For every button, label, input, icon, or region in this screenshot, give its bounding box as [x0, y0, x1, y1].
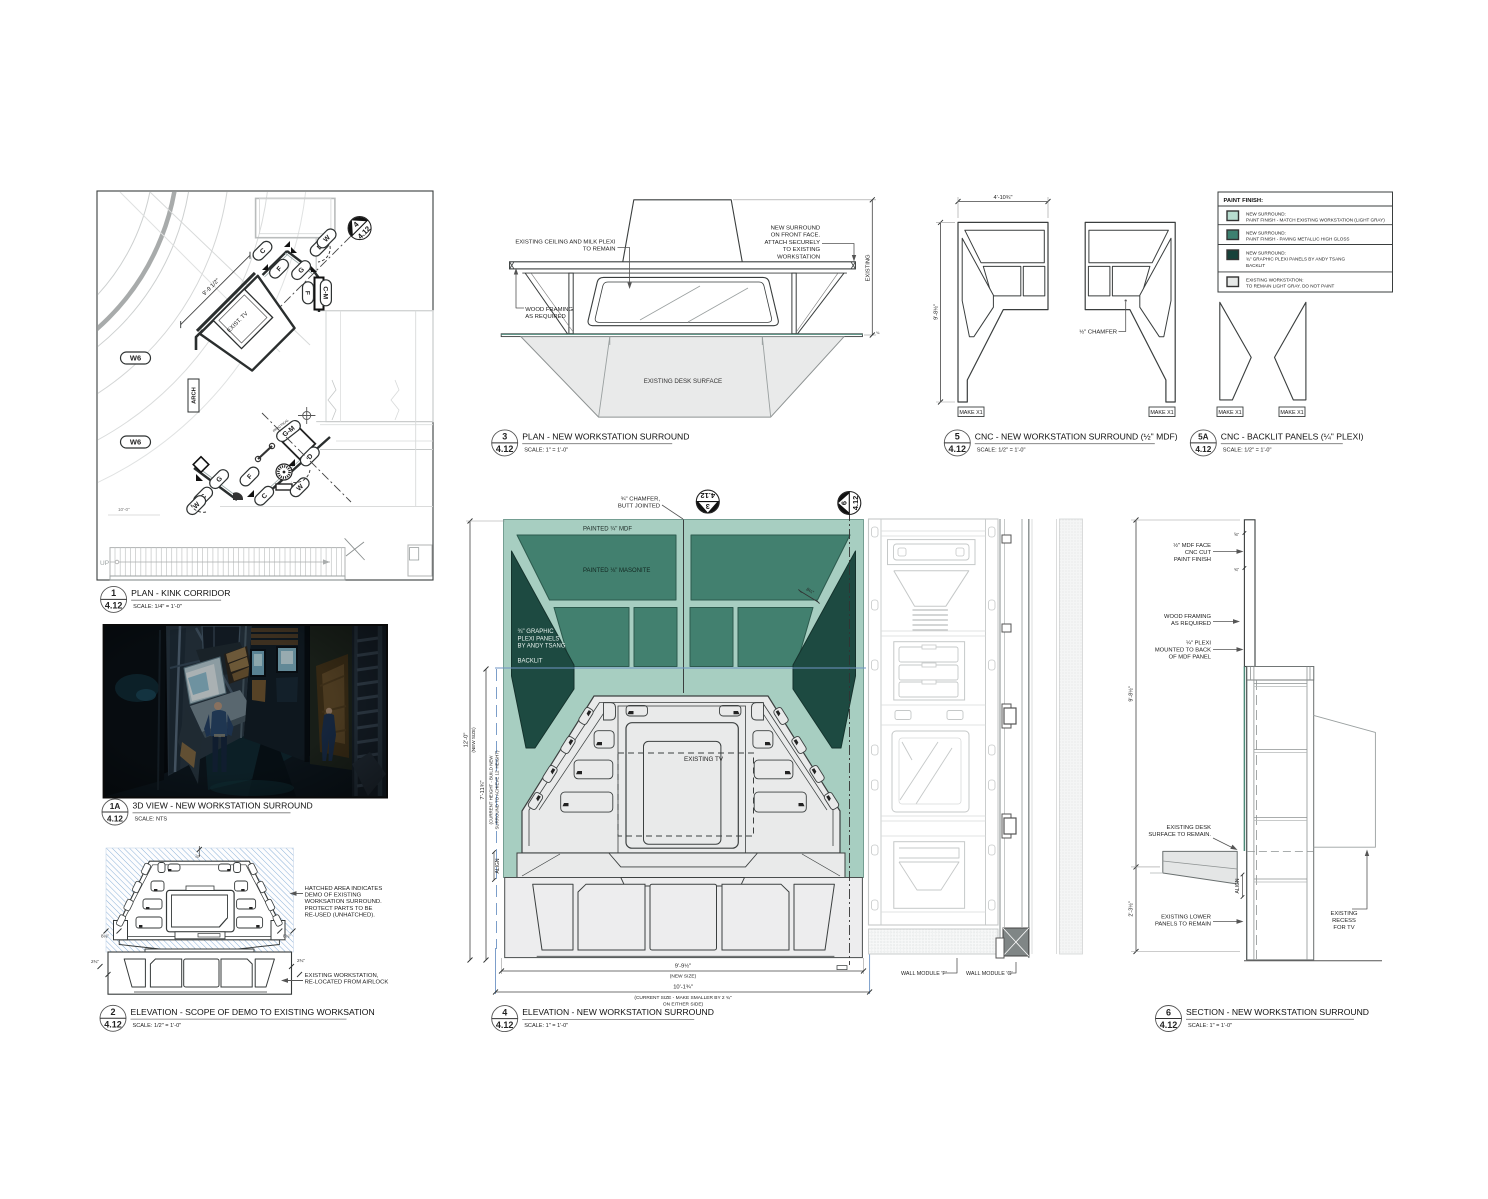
svg-text:EXISTING WORKSTATION:: EXISTING WORKSTATION: [1246, 277, 1304, 282]
svg-text:MAKE X1: MAKE X1 [1280, 410, 1303, 416]
svg-text:4.12: 4.12 [949, 444, 967, 454]
svg-text:PAINTED ¾" MDF: PAINTED ¾" MDF [583, 527, 632, 533]
svg-text:MAKE X1: MAKE X1 [1150, 410, 1173, 416]
svg-text:MOUNTED TO BACK: MOUNTED TO BACK [1155, 648, 1211, 654]
svg-text:(CURRENT HEIGHT - BUILD NEW: (CURRENT HEIGHT - BUILD NEW [489, 755, 494, 825]
svg-text:4.12: 4.12 [496, 1020, 514, 1030]
svg-text:4.12: 4.12 [104, 1020, 122, 1030]
svg-text:⅝": ⅝" [1234, 532, 1239, 537]
svg-text:3: 3 [502, 432, 507, 442]
svg-text:4.12: 4.12 [107, 814, 123, 823]
svg-text:BACKLIT: BACKLIT [1246, 263, 1265, 268]
svg-text:BY ANDY TSANG: BY ANDY TSANG [518, 644, 566, 650]
svg-text:1: 1 [111, 588, 116, 598]
svg-text:PLAN - KINK CORRIDOR: PLAN - KINK CORRIDOR [131, 588, 230, 598]
svg-text:TO REMAIN: TO REMAIN [583, 247, 616, 253]
svg-text:4.12: 4.12 [496, 444, 514, 454]
svg-text:PAINTED ⅛" MASONITE: PAINTED ⅛" MASONITE [583, 568, 650, 574]
svg-text:SCALE: NTS: SCALE: NTS [135, 817, 168, 823]
svg-text:EXISTING TV: EXISTING TV [684, 756, 724, 763]
svg-text:4.12: 4.12 [1160, 1020, 1178, 1030]
svg-text:4.12: 4.12 [105, 601, 123, 611]
svg-text:SCALE: 1/2" = 1'-0": SCALE: 1/2" = 1'-0" [977, 448, 1026, 454]
svg-text:ON FRONT FACE.: ON FRONT FACE. [771, 233, 821, 239]
svg-text:SCALE: 1" = 1'-0": SCALE: 1" = 1'-0" [524, 448, 568, 454]
svg-text:½" MDF FACE: ½" MDF FACE [1173, 542, 1211, 549]
svg-text:EXISTING DESK: EXISTING DESK [1167, 825, 1212, 831]
svg-text:½" CHAMFER: ½" CHAMFER [1079, 329, 1117, 336]
svg-text:EXISTING: EXISTING [1330, 911, 1358, 917]
svg-text:10'-0": 10'-0" [118, 507, 130, 512]
svg-text:PAINT FINISH - PAVING METALLIC: PAINT FINISH - PAVING METALLIC HIGH GLOS… [1246, 237, 1349, 242]
svg-text:ON EITHER SIDE): ON EITHER SIDE) [663, 1002, 704, 1008]
svg-text:C-M: C-M [322, 286, 329, 299]
svg-text:OF MDF PANEL: OF MDF PANEL [1169, 655, 1212, 661]
svg-text:AS REQUIRED: AS REQUIRED [1171, 621, 1211, 627]
svg-text:(NEW SIZE): (NEW SIZE) [471, 727, 476, 753]
svg-text:WORKSATION SURROUND.: WORKSATION SURROUND. [305, 899, 382, 905]
svg-text:8¼": 8¼" [101, 934, 109, 939]
svg-text:2'-3½": 2'-3½" [1128, 901, 1135, 916]
svg-text:TO EXISTING: TO EXISTING [783, 247, 821, 253]
svg-text:WOOD FRAMING: WOOD FRAMING [1164, 614, 1212, 620]
svg-text:5A: 5A [1198, 433, 1209, 442]
svg-text:SURFACE TO REMAIN.: SURFACE TO REMAIN. [1148, 832, 1211, 838]
svg-text:SURROUND TO ACHIEVE 12' HEIGHT: SURROUND TO ACHIEVE 12' HEIGHT) [495, 750, 500, 830]
svg-text:SCALE: 1/2" = 1'-0": SCALE: 1/2" = 1'-0" [1223, 448, 1272, 454]
svg-text:EXISTING LOWER: EXISTING LOWER [1161, 915, 1211, 921]
svg-text:8¼": 8¼" [283, 934, 291, 939]
svg-text:EXISTING WORKSTATION,: EXISTING WORKSTATION, [305, 973, 379, 979]
svg-text:7'-11¾": 7'-11¾" [480, 780, 486, 799]
svg-text:NEW SURROUND:: NEW SURROUND: [1246, 250, 1286, 255]
svg-text:6: 6 [840, 501, 849, 505]
svg-text:12'-0": 12'-0" [464, 733, 470, 748]
svg-text:UP: UP [100, 560, 109, 567]
svg-text:ARCH: ARCH [192, 387, 198, 404]
svg-text:NEW SURROUND:: NEW SURROUND: [1246, 211, 1286, 216]
svg-text:¾" CHAMFER,: ¾" CHAMFER, [621, 497, 661, 503]
svg-text:PAINT FINISH: PAINT FINISH [1174, 557, 1211, 563]
svg-text:SCALE: 1" = 1'-0": SCALE: 1" = 1'-0" [524, 1023, 568, 1029]
svg-text:WALL MODULE 'G': WALL MODULE 'G' [966, 971, 1013, 977]
svg-text:RE-LOCATED FROM AIRLOCK: RE-LOCATED FROM AIRLOCK [305, 980, 389, 986]
svg-text:⅞": ⅞" [195, 854, 200, 859]
svg-text:PANELS TO REMAIN: PANELS TO REMAIN [1155, 922, 1211, 928]
svg-text:SCALE: 1/4" = 1'-0": SCALE: 1/4" = 1'-0" [133, 604, 182, 610]
svg-text:ALIGN: ALIGN [1235, 878, 1241, 893]
svg-text:¾": ¾" [1234, 567, 1239, 572]
svg-text:PLEXI PANELS: PLEXI PANELS [518, 636, 560, 642]
svg-text:RE-USED (UNHATCHED).: RE-USED (UNHATCHED). [305, 912, 376, 918]
svg-text:ALIGN: ALIGN [495, 858, 501, 873]
svg-text:5: 5 [955, 432, 960, 442]
svg-text:WOOD FRAMING: WOOD FRAMING [525, 307, 573, 313]
svg-text:ELEVATION - SCOPE OF DEMO TO E: ELEVATION - SCOPE OF DEMO TO EXISTING WO… [131, 1007, 375, 1017]
svg-text:PAINT FINISH - MATCH EXISTING: PAINT FINISH - MATCH EXISTING WORKSTATIO… [1246, 218, 1385, 223]
svg-text:SCALE: 1" = 1'-0": SCALE: 1" = 1'-0" [1188, 1023, 1232, 1029]
svg-text:EXISTING CEILING AND MILK PLEX: EXISTING CEILING AND MILK PLEXI [515, 240, 616, 246]
svg-text:EXISTING DESK SURFACE: EXISTING DESK SURFACE [644, 378, 722, 385]
svg-text:9'-9½": 9'-9½" [675, 963, 691, 970]
svg-text:¼" PLEXI: ¼" PLEXI [1186, 641, 1211, 647]
svg-text:2¾": 2¾" [91, 959, 99, 964]
svg-text:¾" GRAPHIC: ¾" GRAPHIC [518, 629, 555, 635]
svg-text:BACKLIT: BACKLIT [518, 659, 543, 665]
svg-text:F: F [304, 291, 311, 295]
svg-text:SECTION - NEW WORKSTATION SURR: SECTION - NEW WORKSTATION SURROUND [1186, 1007, 1369, 1017]
svg-text:AS REQUIRED: AS REQUIRED [525, 314, 566, 320]
svg-text:MAKE X1: MAKE X1 [1218, 410, 1241, 416]
svg-text:PROTECT PARTS TO BE: PROTECT PARTS TO BE [305, 906, 373, 912]
svg-text:4.12: 4.12 [700, 491, 715, 500]
svg-text:NEW SURROUND: NEW SURROUND [771, 226, 820, 232]
svg-text:SCALE: 1/2" = 1'-0": SCALE: 1/2" = 1'-0" [133, 1023, 182, 1029]
svg-text:PLAN - NEW WORKSTATION SURROUN: PLAN - NEW WORKSTATION SURROUND [522, 432, 689, 442]
svg-text:DEMO OF EXISTING: DEMO OF EXISTING [305, 893, 362, 899]
svg-text:CNC - BACKLIT PANELS (¼" PLEXI: CNC - BACKLIT PANELS (¼" PLEXI) [1221, 432, 1364, 442]
svg-text:CNC - NEW WORKSTATION SURROUND: CNC - NEW WORKSTATION SURROUND (½" MDF) [975, 432, 1178, 442]
svg-text:2¾": 2¾" [297, 958, 305, 963]
svg-text:4.12: 4.12 [1195, 445, 1211, 454]
svg-text:4.12: 4.12 [851, 496, 860, 511]
svg-text:FOR TV: FOR TV [1333, 925, 1354, 931]
svg-text:3D VIEW - NEW WORKSTATION SURR: 3D VIEW - NEW WORKSTATION SURROUND [133, 801, 313, 811]
svg-text:CNC CUT: CNC CUT [1185, 550, 1212, 556]
svg-text:ELEVATION - NEW WORKSTATION SU: ELEVATION - NEW WORKSTATION SURROUND [522, 1007, 714, 1017]
svg-text:(NEW SIZE): (NEW SIZE) [670, 974, 697, 980]
svg-text:9'-8½": 9'-8½" [933, 304, 940, 320]
svg-text:WORKSTATION: WORKSTATION [777, 254, 820, 260]
svg-text:4: 4 [502, 1007, 507, 1017]
svg-text:W6: W6 [130, 354, 141, 363]
svg-text:BUTT JOINTED: BUTT JOINTED [618, 504, 660, 510]
svg-text:EXISTING: EXISTING [866, 254, 872, 282]
svg-text:¾" GRAPHIC PLEXI PANELS BY AND: ¾" GRAPHIC PLEXI PANELS BY ANDY TSANG [1246, 257, 1345, 262]
svg-text:RECESS: RECESS [1332, 918, 1356, 924]
svg-text:1A: 1A [110, 802, 121, 811]
svg-text:MAKE X1: MAKE X1 [959, 410, 982, 416]
svg-text:10'-1¾": 10'-1¾" [673, 985, 693, 991]
svg-text:WALL MODULE 'F': WALL MODULE 'F' [901, 971, 947, 977]
svg-text:W6: W6 [130, 438, 141, 447]
svg-text:TO REMAIN LIGHT GRAY. DO NOT P: TO REMAIN LIGHT GRAY. DO NOT PAINT [1246, 284, 1335, 289]
svg-text:6: 6 [1166, 1007, 1171, 1017]
svg-text:NEW SURROUND:: NEW SURROUND: [1246, 230, 1286, 235]
svg-text:4'-10¾": 4'-10¾" [994, 195, 1013, 201]
svg-text:3: 3 [706, 502, 710, 511]
svg-text:9'-8½": 9'-8½" [1128, 686, 1135, 701]
svg-text:ATTACH SECURELY: ATTACH SECURELY [764, 240, 820, 246]
svg-text:PAINT FINISH:: PAINT FINISH: [1224, 198, 1264, 204]
svg-text:HATCHED AREA INDICATES: HATCHED AREA INDICATES [305, 886, 383, 892]
svg-text:(CURRENT SIZE - MAKE SMALLER B: (CURRENT SIZE - MAKE SMALLER BY 2 ¾" [634, 995, 732, 1001]
svg-text:2: 2 [110, 1007, 115, 1017]
